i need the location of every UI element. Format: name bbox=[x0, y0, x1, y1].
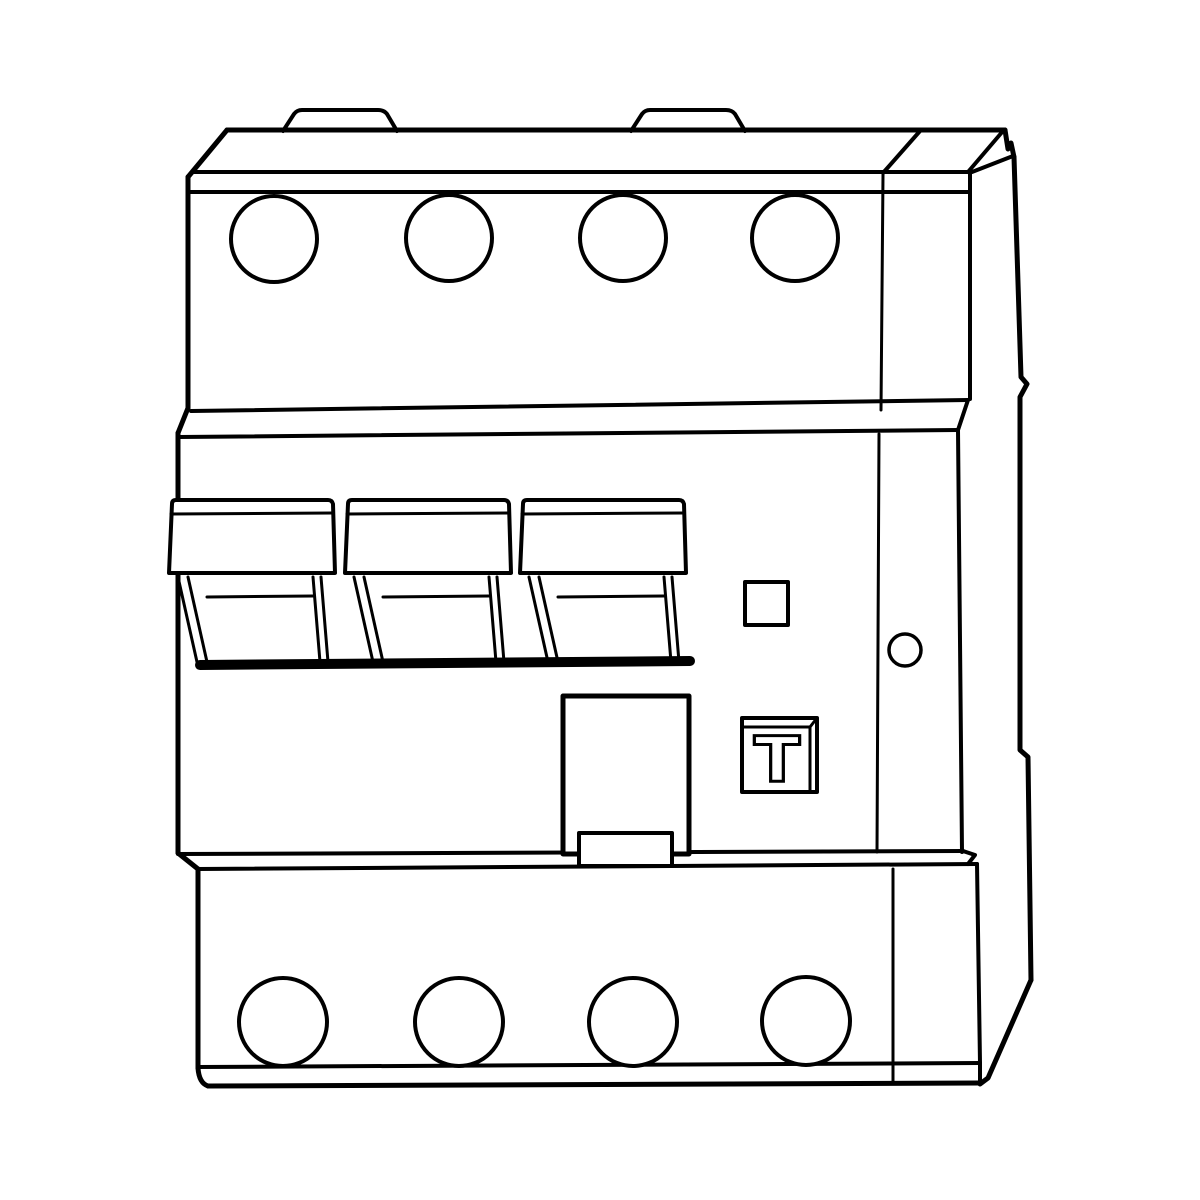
test-button-label: T bbox=[754, 723, 800, 796]
bottom-lip-edge bbox=[208, 1083, 980, 1086]
switch-2-left-strip-inner bbox=[364, 577, 383, 662]
housing-seam-middle-section bbox=[877, 434, 879, 852]
front-right-edge-middle-section bbox=[958, 430, 962, 852]
switch-2-rocker-line bbox=[383, 596, 489, 597]
bottom-terminal-screws bbox=[239, 977, 850, 1066]
top-terminal-screws bbox=[231, 195, 838, 282]
switch-2-right-strip-inner bbox=[489, 577, 496, 662]
terminal-screw-top-3 bbox=[580, 195, 666, 281]
switch-1-left-strip-inner bbox=[188, 577, 207, 662]
switch-3-right-strip-outer bbox=[672, 577, 679, 662]
switch-1-handle-cap bbox=[169, 500, 335, 573]
switch-2-handle-cap bbox=[345, 500, 511, 573]
terminal-screw-bottom-3 bbox=[589, 978, 677, 1066]
switch-2-left-strip-outer bbox=[354, 577, 373, 662]
terminal-screw-top-1 bbox=[231, 196, 317, 282]
divider-upper-right-chamfer bbox=[958, 400, 968, 430]
switch-3-left-strip-inner bbox=[539, 577, 558, 662]
status-window-square bbox=[745, 582, 788, 625]
left-step-upper bbox=[178, 408, 188, 433]
housing-seam-top-section bbox=[881, 175, 883, 410]
switch-1-rocker-line bbox=[207, 596, 313, 597]
switch-1-right-strip-outer bbox=[321, 577, 328, 662]
toggle-switch-1 bbox=[169, 500, 335, 662]
front-bottom-edge bbox=[198, 1063, 980, 1067]
toggle-switches bbox=[169, 500, 690, 665]
label-window-tab bbox=[579, 833, 672, 866]
toggle-switch-2 bbox=[345, 500, 511, 662]
toggle-switch-3 bbox=[520, 500, 686, 662]
switch-2-cap-top-line bbox=[347, 513, 509, 514]
switch-1-left-strip-outer bbox=[178, 577, 197, 662]
terminal-screw-bottom-4 bbox=[762, 977, 850, 1065]
divider-upper-top-line bbox=[191, 400, 968, 411]
divider-upper-bottom-line bbox=[179, 430, 958, 437]
switch-3-cap-top-line bbox=[522, 513, 684, 514]
switch-1-right-strip-inner bbox=[313, 577, 320, 662]
switch-1-cap-top-line bbox=[171, 513, 333, 514]
side-indicator-hole bbox=[889, 634, 921, 666]
test-button: T bbox=[742, 718, 817, 796]
outer-right-edge bbox=[1014, 157, 1031, 980]
top-right-corner-notch bbox=[1005, 130, 1014, 157]
switch-3-left-strip-outer bbox=[529, 577, 548, 662]
front-right-edge-bottom-section bbox=[977, 864, 980, 1063]
switch-3-rocker-line bbox=[558, 596, 664, 597]
switch-2-right-strip-outer bbox=[497, 577, 504, 662]
terminal-screw-top-4 bbox=[752, 195, 838, 281]
switch-base-bar bbox=[200, 661, 690, 665]
status-indicator-window bbox=[745, 582, 788, 625]
breaker-line-drawing: T bbox=[0, 0, 1200, 1200]
terminal-screw-bottom-1 bbox=[239, 978, 327, 1066]
top-left-chamfer bbox=[188, 130, 227, 177]
housing-panel-lines bbox=[178, 131, 1013, 1083]
label-window bbox=[563, 696, 689, 866]
bottom-left-lip-curve bbox=[198, 1068, 208, 1086]
bottom-right-chamfer bbox=[980, 980, 1031, 1084]
top-face-seam-fold bbox=[883, 131, 920, 173]
terminal-screw-bottom-2 bbox=[415, 978, 503, 1066]
label-window-frame bbox=[563, 696, 689, 854]
terminal-screw-top-2 bbox=[406, 195, 492, 281]
switch-3-right-strip-inner bbox=[664, 577, 671, 662]
switch-3-handle-cap bbox=[520, 500, 686, 573]
